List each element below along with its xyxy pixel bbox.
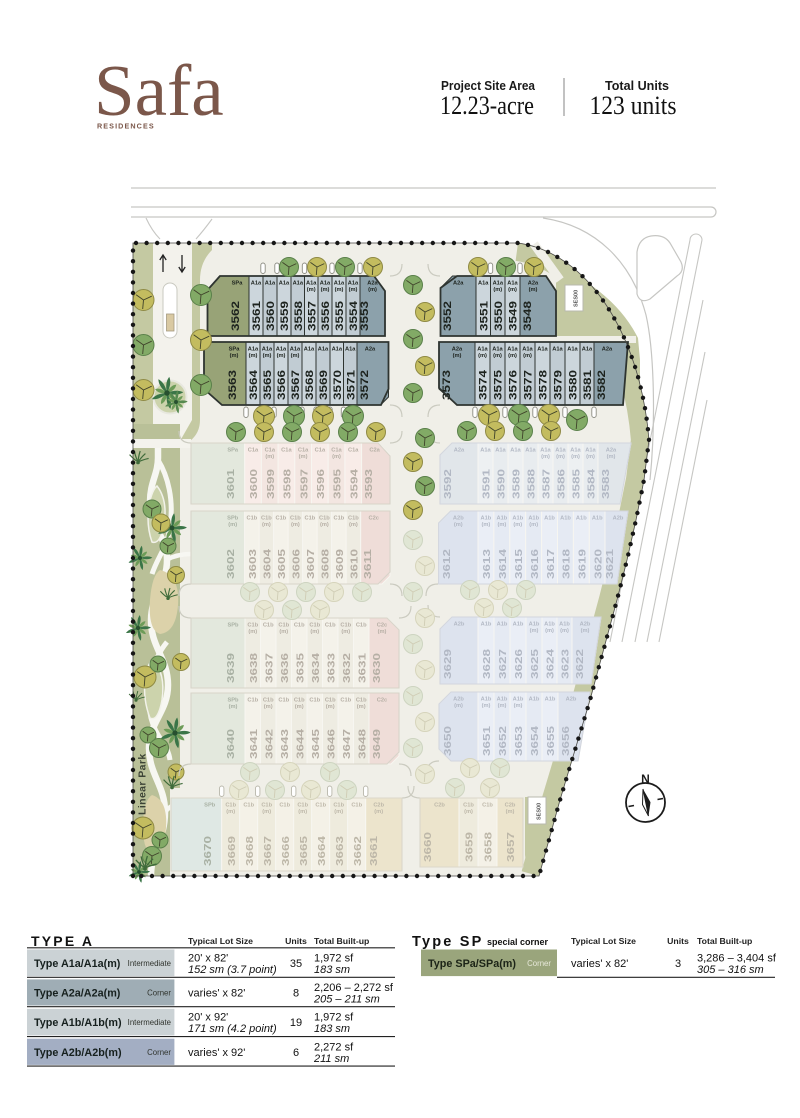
svg-text:3642: 3642 [263,729,275,759]
svg-text:A1b: A1b [560,516,571,522]
svg-text:8: 8 [293,988,299,1000]
svg-text:(m): (m) [453,353,462,359]
svg-text:(m): (m) [571,454,580,460]
svg-text:(m): (m) [556,454,565,460]
svg-text:3: 3 [675,958,681,970]
svg-text:3599: 3599 [265,469,277,499]
svg-text:C1b: C1b [261,803,272,809]
svg-text:3657: 3657 [505,832,517,862]
svg-text:3558: 3558 [293,301,305,331]
svg-text:(m): (m) [464,809,473,815]
svg-text:(m): (m) [581,628,590,634]
svg-text:3634: 3634 [310,653,322,683]
svg-text:SPb: SPb [227,698,239,704]
svg-text:A2b: A2b [580,622,591,628]
svg-text:3562: 3562 [230,301,242,331]
svg-text:3643: 3643 [279,729,291,759]
svg-text:(m): (m) [229,704,238,710]
svg-text:SPb: SPb [227,516,239,522]
svg-text:SPa: SPa [232,281,244,287]
svg-text:C1b: C1b [334,516,345,522]
svg-text:C1a: C1a [315,448,326,454]
svg-text:(m): (m) [478,353,487,359]
svg-text:(m): (m) [586,454,595,460]
svg-text:C2c: C2c [377,698,387,704]
svg-text:3586: 3586 [556,469,568,499]
svg-text:3575: 3575 [493,370,505,400]
svg-text:3625: 3625 [529,649,541,679]
svg-text:3659: 3659 [464,832,476,862]
svg-text:3581: 3581 [582,370,594,400]
svg-text:A2b: A2b [566,697,577,703]
svg-text:C1b: C1b [278,698,289,704]
svg-text:3588: 3588 [526,469,538,499]
svg-text:A1a: A1a [306,281,317,287]
svg-text:A1a: A1a [334,281,345,287]
svg-text:183 sm: 183 sm [314,1023,350,1035]
svg-text:171 sm (4.2 point): 171 sm (4.2 point) [188,1023,277,1035]
svg-text:3627: 3627 [497,649,509,679]
svg-text:A1b: A1b [481,622,492,628]
svg-text:A1a: A1a [279,281,290,287]
svg-text:3605: 3605 [276,549,288,579]
svg-text:3572: 3572 [359,370,371,400]
svg-text:(m): (m) [514,703,523,709]
svg-text:A1a: A1a [540,448,551,454]
svg-text:3653: 3653 [513,726,525,756]
svg-text:(m): (m) [482,703,491,709]
svg-text:(m): (m) [529,522,538,528]
svg-text:(m): (m) [307,287,316,293]
svg-text:A1b: A1b [529,622,540,628]
svg-text:C1b: C1b [247,698,258,704]
svg-text:C1b: C1b [340,698,351,704]
svg-text:(m): (m) [291,522,300,528]
svg-text:3609: 3609 [334,549,346,579]
svg-text:A2b: A2b [454,622,465,628]
svg-text:(m): (m) [349,522,358,528]
svg-text:3613: 3613 [481,549,493,579]
svg-text:3557: 3557 [306,301,318,331]
svg-text:(m): (m) [262,522,271,528]
svg-text:3616: 3616 [529,549,541,579]
svg-text:3608: 3608 [320,549,332,579]
svg-text:3610: 3610 [349,549,361,579]
svg-text:C1a: C1a [281,448,292,454]
svg-text:SPa: SPa [227,448,239,454]
svg-text:(m): (m) [530,628,539,634]
svg-text:211 sm: 211 sm [313,1053,349,1065]
svg-text:6: 6 [293,1047,299,1059]
svg-text:3591: 3591 [481,469,493,499]
svg-text:3553: 3553 [359,301,371,331]
svg-text:C1b: C1b [463,803,474,809]
svg-text:3658: 3658 [483,832,495,862]
svg-text:A1b: A1b [481,516,492,522]
svg-text:C1b: C1b [348,516,359,522]
svg-text:Type SP: Type SP [412,934,484,950]
svg-text:C1b: C1b [294,698,305,704]
svg-text:3629: 3629 [442,649,454,679]
svg-text:3600: 3600 [248,469,260,499]
svg-text:3564: 3564 [248,370,260,400]
svg-text:(m): (m) [368,287,377,293]
svg-text:N: N [641,772,650,786]
svg-text:A1b: A1b [528,516,539,522]
svg-text:(m): (m) [454,522,463,528]
svg-text:3571: 3571 [345,370,357,400]
svg-text:3574: 3574 [478,370,490,400]
svg-text:3611: 3611 [362,549,374,579]
svg-text:(m): (m) [299,454,308,460]
svg-text:3641: 3641 [248,729,260,759]
svg-text:C1b: C1b [482,803,493,809]
svg-text:3652: 3652 [497,726,509,756]
svg-text:3646: 3646 [325,729,337,759]
svg-text:A1a: A1a [477,347,488,353]
svg-text:A1a: A1a [304,347,315,353]
svg-text:3589: 3589 [511,469,523,499]
svg-text:A2b: A2b [613,516,624,522]
svg-text:(m): (m) [263,353,272,359]
svg-text:A1b: A1b [497,516,508,522]
svg-text:A1a: A1a [348,281,359,287]
svg-text:Safa: Safa [94,50,224,131]
svg-text:3654: 3654 [529,726,541,756]
svg-text:(m): (m) [291,353,300,359]
svg-text:3630: 3630 [371,653,383,683]
svg-text:C1a: C1a [298,448,309,454]
svg-text:(m): (m) [454,703,463,709]
svg-text:C1b: C1b [278,623,289,629]
svg-text:C1b: C1b [325,698,336,704]
svg-text:1,972 sf: 1,972 sf [314,952,354,964]
svg-text:A1a: A1a [570,448,581,454]
svg-text:A1a: A1a [251,281,262,287]
svg-text:A1a: A1a [525,448,536,454]
svg-text:3668: 3668 [244,836,256,866]
svg-text:C1b: C1b [294,623,305,629]
svg-text:SPb: SPb [204,803,216,809]
svg-text:A1a: A1a [585,448,596,454]
svg-text:Units: Units [285,936,307,946]
svg-text:C1b: C1b [315,803,326,809]
svg-text:C1b: C1b [261,516,272,522]
svg-text:(m): (m) [378,629,387,635]
svg-text:3576: 3576 [508,370,520,400]
svg-text:A2a: A2a [365,347,376,353]
svg-text:3636: 3636 [279,653,291,683]
svg-text:C1b: C1b [247,516,258,522]
svg-text:3560: 3560 [265,301,277,331]
svg-text:(m): (m) [513,522,522,528]
svg-text:3618: 3618 [561,549,573,579]
svg-text:3563: 3563 [227,370,239,400]
svg-text:A2a: A2a [454,448,465,454]
svg-text:A1a: A1a [492,347,503,353]
svg-text:C1b: C1b [297,803,308,809]
svg-text:C1b: C1b [243,803,254,809]
svg-text:(m): (m) [560,628,569,634]
svg-text:3639: 3639 [225,653,237,683]
svg-text:A2a: A2a [453,281,464,287]
svg-text:A1b: A1b [497,697,508,703]
svg-text:3615: 3615 [513,549,525,579]
svg-text:varies' x 82': varies' x 82' [188,988,245,1000]
svg-text:(m): (m) [529,287,538,293]
svg-text:123 units: 123 units [590,91,677,120]
svg-text:3619: 3619 [577,549,589,579]
svg-text:205 – 211 sm: 205 – 211 sm [313,994,380,1006]
svg-text:A1a: A1a [537,347,548,353]
svg-text:3669: 3669 [226,836,238,866]
svg-text:3655: 3655 [545,726,557,756]
svg-text:3623: 3623 [560,649,572,679]
svg-text:Intermediate: Intermediate [128,1018,171,1027]
svg-text:A1b: A1b [544,516,555,522]
svg-text:C1b: C1b [263,623,274,629]
svg-text:3585: 3585 [571,469,583,499]
svg-text:C1a: C1a [348,448,359,454]
svg-text:SPb: SPb [227,623,239,629]
svg-text:(m): (m) [334,809,343,815]
svg-text:C1b: C1b [309,623,320,629]
svg-text:3607: 3607 [305,549,317,579]
svg-text:(m): (m) [335,287,344,293]
svg-text:C1b: C1b [333,803,344,809]
svg-text:(m): (m) [508,287,517,293]
svg-text:3621: 3621 [604,549,616,579]
svg-text:3665: 3665 [298,836,310,866]
svg-text:A2b: A2b [453,697,464,703]
svg-text:3577: 3577 [523,370,535,400]
svg-text:A1b: A1b [576,516,587,522]
svg-text:A1a: A1a [265,281,276,287]
svg-text:305 – 316 sm: 305 – 316 sm [697,964,764,976]
svg-text:A1a: A1a [318,347,329,353]
svg-text:A1a: A1a [555,448,566,454]
svg-text:C1b: C1b [279,803,290,809]
svg-text:C1b: C1b [309,698,320,704]
svg-text:(m): (m) [262,809,271,815]
svg-text:3596: 3596 [315,469,327,499]
svg-text:3612: 3612 [441,549,453,579]
svg-text:3620: 3620 [593,549,605,579]
svg-text:3604: 3604 [262,549,274,579]
svg-text:3592: 3592 [442,469,454,499]
svg-text:(m): (m) [295,704,304,710]
svg-text:3595: 3595 [332,469,344,499]
svg-text:(m): (m) [230,353,239,359]
svg-text:(m): (m) [321,287,330,293]
svg-text:A1a: A1a [493,281,504,287]
svg-text:3633: 3633 [325,653,337,683]
svg-text:C2b: C2b [434,803,445,809]
svg-text:A1a: A1a [276,347,287,353]
svg-text:152 sm (3.7 point): 152 sm (3.7 point) [188,964,277,976]
svg-text:(m): (m) [320,522,329,528]
svg-text:3567: 3567 [290,370,302,400]
svg-text:C2b: C2b [505,803,516,809]
svg-text:TYPE A: TYPE A [31,933,94,949]
svg-text:(m): (m) [265,454,274,460]
svg-text:3614: 3614 [497,549,509,579]
svg-text:3551: 3551 [478,301,490,331]
svg-text:A1a: A1a [290,347,301,353]
svg-text:(m): (m) [545,628,554,634]
svg-text:A1b: A1b [481,697,492,703]
svg-text:(m): (m) [541,454,550,460]
svg-text:3566: 3566 [276,370,288,400]
svg-text:3622: 3622 [574,649,586,679]
svg-text:20' x 82': 20' x 82' [188,952,228,964]
svg-text:A2b: A2b [453,516,464,522]
svg-text:C1b: C1b [247,623,258,629]
svg-text:A1b: A1b [529,697,540,703]
svg-text:A2a: A2a [528,281,539,287]
svg-text:(m): (m) [349,287,358,293]
svg-text:SES00: SES00 [574,290,580,307]
svg-text:C2a: C2a [369,448,380,454]
svg-text:3549: 3549 [508,301,520,331]
svg-text:A1a: A1a [567,347,578,353]
svg-text:C2b: C2b [373,803,384,809]
svg-text:(m): (m) [357,704,366,710]
svg-text:Corner: Corner [527,959,551,968]
svg-text:3555: 3555 [334,301,346,331]
svg-text:20' x 92': 20' x 92' [188,1012,228,1024]
svg-text:C1b: C1b [225,803,236,809]
svg-text:(m): (m) [249,353,258,359]
svg-text:3661: 3661 [368,836,380,866]
svg-text:3582: 3582 [596,370,608,400]
svg-text:3568: 3568 [304,370,316,400]
svg-text:183 sm: 183 sm [314,964,350,976]
svg-text:3650: 3650 [442,726,454,756]
svg-text:A1a: A1a [293,281,304,287]
svg-text:3550: 3550 [493,301,505,331]
svg-text:Corner: Corner [147,989,171,998]
svg-text:A1b: A1b [544,622,555,628]
svg-text:C1a: C1a [248,448,259,454]
svg-text:3552: 3552 [442,301,454,331]
svg-text:C2c: C2c [377,623,387,629]
svg-text:3579: 3579 [553,370,565,400]
svg-text:1,972 sf: 1,972 sf [314,1012,354,1024]
svg-text:3617: 3617 [545,549,557,579]
svg-text:3649: 3649 [371,729,383,759]
svg-text:varies' x 92': varies' x 92' [188,1047,245,1059]
svg-text:3645: 3645 [310,729,322,759]
svg-text:A1b: A1b [513,697,524,703]
svg-text:(m): (m) [228,522,237,528]
svg-text:C1b: C1b [325,623,336,629]
svg-text:A1a: A1a [510,448,521,454]
svg-text:3663: 3663 [334,836,346,866]
svg-text:C1a: C1a [265,448,276,454]
svg-text:(m): (m) [374,809,383,815]
svg-text:A1a: A1a [495,448,506,454]
svg-text:3651: 3651 [481,726,493,756]
svg-text:3597: 3597 [298,469,310,499]
svg-text:3590: 3590 [496,469,508,499]
svg-text:SES00: SES00 [537,803,543,820]
svg-text:3580: 3580 [568,370,580,400]
svg-text:A1a: A1a [522,347,533,353]
svg-text:A1b: A1b [592,516,603,522]
svg-text:(m): (m) [310,629,319,635]
svg-text:A1a: A1a [507,281,518,287]
svg-text:19: 19 [290,1017,302,1029]
svg-text:Linear Park: Linear Park [137,753,149,815]
svg-text:3667: 3667 [262,836,274,866]
svg-text:A1a: A1a [582,347,593,353]
svg-text:3626: 3626 [513,649,525,679]
svg-text:Total Built-up: Total Built-up [697,936,752,946]
svg-text:A2a: A2a [452,347,463,353]
svg-text:Type A1b/A1b(m): Type A1b/A1b(m) [34,1017,122,1029]
svg-text:C2c: C2c [368,516,378,522]
svg-text:A1b: A1b [512,516,523,522]
svg-text:C1a: C1a [331,448,342,454]
svg-text:A1b: A1b [497,622,508,628]
svg-text:3670: 3670 [202,836,214,866]
svg-text:C1b: C1b [356,698,367,704]
svg-text:(m): (m) [332,454,341,460]
svg-text:(m): (m) [279,629,288,635]
svg-text:3584: 3584 [586,469,598,499]
svg-text:3603: 3603 [247,549,259,579]
svg-text:Type A2a/A2a(m): Type A2a/A2a(m) [34,988,121,1000]
svg-text:3637: 3637 [263,653,275,683]
svg-text:3624: 3624 [545,649,557,679]
svg-text:3548: 3548 [522,301,534,331]
svg-text:3640: 3640 [225,729,237,759]
svg-text:3606: 3606 [291,549,303,579]
svg-text:3556: 3556 [320,301,332,331]
svg-text:3587: 3587 [541,469,553,499]
svg-text:3628: 3628 [481,649,493,679]
svg-text:Typical Lot Size: Typical Lot Size [188,936,253,946]
svg-text:3662: 3662 [352,836,364,866]
svg-text:A1a: A1a [345,347,356,353]
svg-text:(m): (m) [226,809,235,815]
svg-text:A1a: A1a [332,347,343,353]
svg-text:Type A1a/A1a(m): Type A1a/A1a(m) [34,958,121,970]
svg-text:3593: 3593 [363,469,375,499]
svg-text:3565: 3565 [262,370,274,400]
svg-text:C1b: C1b [263,698,274,704]
svg-text:3,286 – 3,404 sf: 3,286 – 3,404 sf [697,952,777,964]
svg-text:3631: 3631 [356,653,368,683]
svg-text:35: 35 [290,958,302,970]
svg-text:3644: 3644 [294,729,306,759]
svg-text:varies' x 82': varies' x 82' [571,958,628,970]
svg-text:(m): (m) [493,287,502,293]
svg-text:(m): (m) [341,629,350,635]
svg-text:3569: 3569 [318,370,330,400]
svg-text:3660: 3660 [422,832,434,862]
svg-text:3666: 3666 [280,836,292,866]
svg-text:(m): (m) [248,629,257,635]
svg-text:3638: 3638 [248,653,260,683]
svg-text:3598: 3598 [282,469,294,499]
svg-text:3561: 3561 [251,301,263,331]
svg-text:3648: 3648 [356,729,368,759]
svg-text:3578: 3578 [538,370,550,400]
svg-text:C1b: C1b [290,516,301,522]
svg-text:(m): (m) [277,353,286,359]
